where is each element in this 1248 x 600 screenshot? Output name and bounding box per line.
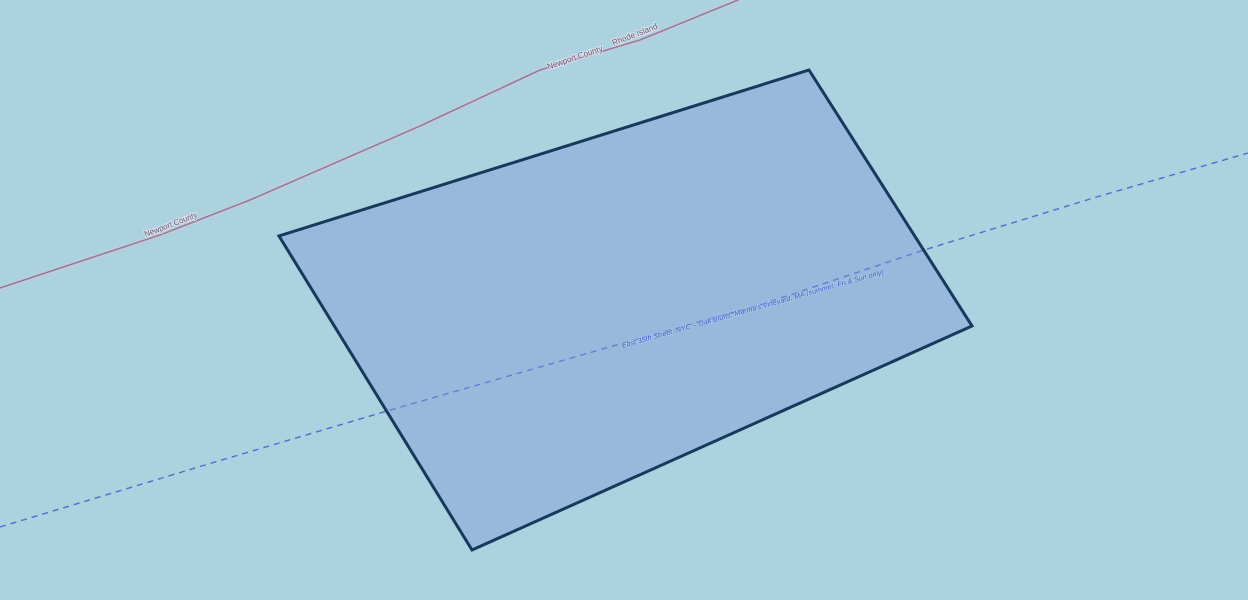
- map-canvas[interactable]: East 35th Street, NYC – Oak Bluffs, Mart…: [0, 0, 1248, 600]
- map-svg[interactable]: East 35th Street, NYC – Oak Bluffs, Mart…: [0, 0, 1248, 600]
